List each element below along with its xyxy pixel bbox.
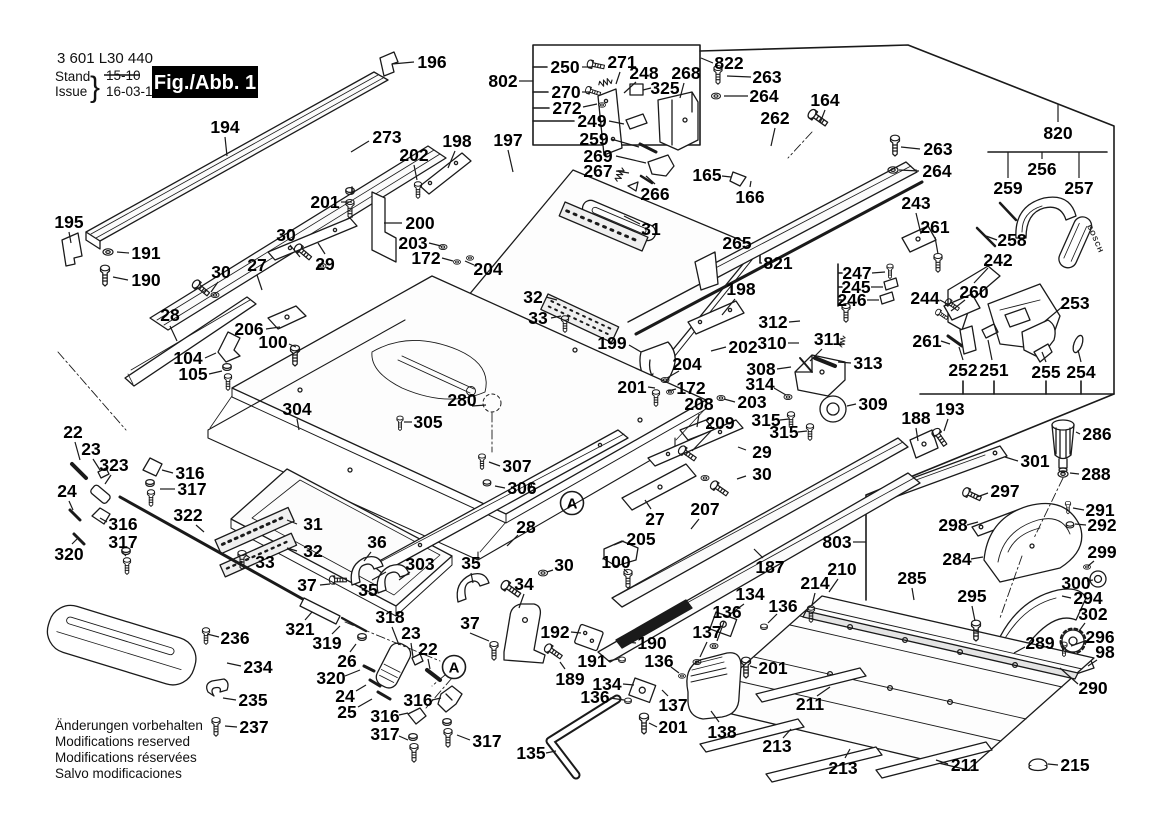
part-label-316: 316: [403, 690, 432, 710]
part-label-208: 208: [684, 394, 713, 414]
part-label-164: 164: [810, 90, 839, 110]
leader-251: [988, 340, 992, 360]
part-label-31: 31: [641, 219, 661, 239]
part-label-190: 190: [637, 633, 666, 653]
part-label-263: 263: [923, 139, 952, 159]
part-label-213: 213: [762, 736, 791, 756]
part-label-243: 243: [901, 193, 930, 213]
leader-234: [227, 663, 241, 666]
part-label-194: 194: [210, 117, 239, 137]
leader-288: [1070, 473, 1079, 474]
part-label-302: 302: [1078, 604, 1107, 624]
part-label-301: 301: [1020, 451, 1049, 471]
part-label-105: 105: [178, 364, 207, 384]
leader-261: [935, 237, 938, 254]
leader-273: [351, 141, 369, 152]
part-label-303: 303: [405, 554, 434, 574]
part-label-250: 250: [550, 57, 579, 77]
stand-label: Stand: [55, 69, 90, 84]
part-label-265: 265: [722, 233, 751, 253]
part-label-255: 255: [1031, 362, 1060, 382]
part-label-204: 204: [672, 354, 701, 374]
part-label-244: 244: [910, 288, 939, 308]
part-label-289: 289: [1025, 633, 1054, 653]
pin-24a: [70, 510, 80, 520]
part-label-310: 310: [757, 333, 786, 353]
part-label-325: 325: [650, 78, 679, 98]
part-label-313: 313: [853, 353, 882, 373]
part-label-234: 234: [243, 657, 272, 677]
part-label-246: 246: [837, 290, 866, 310]
bracket-34: [504, 604, 545, 663]
leader-304: [297, 419, 299, 430]
part-label-30: 30: [752, 464, 772, 484]
part-label-35: 35: [461, 553, 481, 573]
clamp-245: [884, 278, 898, 290]
leader-210: [829, 579, 838, 592]
leader-323: [105, 475, 111, 484]
part-label-201: 201: [617, 377, 646, 397]
leader-22: [75, 442, 80, 460]
part-label-201: 201: [658, 717, 687, 737]
leader-261: [941, 341, 950, 344]
leader-203: [429, 243, 441, 246]
part-label-802: 802: [488, 71, 517, 91]
part-label-34: 34: [514, 574, 534, 594]
leader-295: [972, 606, 975, 621]
part-label-28: 28: [516, 517, 536, 537]
leader-235: [223, 698, 236, 700]
part-label-213: 213: [828, 758, 857, 778]
plate-234: [42, 600, 201, 690]
part-label-193: 193: [935, 399, 964, 419]
hook-35b: [457, 574, 489, 602]
part-label-320: 320: [54, 544, 83, 564]
leader-262: [771, 128, 775, 146]
leader-197: [508, 150, 513, 172]
leader-30: [547, 570, 553, 572]
leader-29: [738, 447, 746, 450]
leader-272: [583, 104, 597, 107]
part-label-201: 201: [758, 658, 787, 678]
brace: }: [90, 71, 100, 104]
part-label-30: 30: [276, 225, 296, 245]
part-label-263: 263: [752, 67, 781, 87]
part-label-306: 306: [507, 478, 536, 498]
part-label-200: 200: [405, 213, 434, 233]
part-label-199: 199: [597, 333, 626, 353]
knob-323: [90, 484, 112, 505]
part-label-201: 201: [310, 192, 339, 212]
part-label-307: 307: [502, 456, 531, 476]
leader-263: [901, 147, 920, 149]
clip-235: [207, 679, 228, 696]
footer-line-fr: Modifications réservées: [55, 750, 197, 765]
leader-302: [1079, 623, 1085, 631]
part-label-312: 312: [758, 312, 787, 332]
part-label-166: 166: [735, 187, 764, 207]
leader-263: [727, 76, 751, 77]
part-label-235: 235: [238, 690, 267, 710]
grip-257: [1056, 214, 1094, 271]
plate-261b: [960, 326, 976, 354]
clip-316d: [92, 508, 110, 524]
part-label-314: 314: [745, 374, 774, 394]
part-label-209: 209: [705, 413, 734, 433]
issue-value: 16-03-10: [106, 84, 160, 99]
part-label-264: 264: [922, 161, 951, 181]
inset-802-parts: [598, 84, 698, 191]
part-label-100: 100: [601, 552, 630, 572]
part-label-252: 252: [948, 360, 977, 380]
leader-237: [225, 726, 237, 727]
leader-301: [1005, 457, 1018, 461]
part-label-172: 172: [411, 248, 440, 268]
part-label-165: 165: [692, 165, 721, 185]
part-label-257: 257: [1064, 178, 1093, 198]
part-label-29: 29: [315, 254, 335, 274]
leader-165: [722, 176, 731, 177]
leader-37: [320, 584, 330, 585]
part-label-28: 28: [160, 305, 180, 325]
leader-28: [170, 326, 177, 341]
pin-320b: [364, 666, 374, 671]
part-label-249: 249: [577, 111, 606, 131]
part-label-305: 305: [413, 412, 442, 432]
part-label-211: 211: [796, 694, 824, 714]
part-label-254: 254: [1066, 362, 1095, 382]
part-label-211: 211: [951, 755, 979, 775]
part-label-315: 315: [769, 422, 798, 442]
block-134b: [629, 678, 656, 702]
part-label-27: 27: [645, 509, 664, 529]
part-label-264: 264: [749, 86, 778, 106]
part-label-30: 30: [211, 262, 231, 282]
leader-104: [205, 353, 216, 358]
leader-308: [777, 367, 791, 369]
part-label-203: 203: [737, 392, 766, 412]
part-label-136: 136: [712, 602, 741, 622]
part-label-37: 37: [297, 575, 316, 595]
part-label-311: 311: [814, 329, 842, 349]
plate-188: [910, 430, 938, 458]
part-label-288: 288: [1081, 464, 1110, 484]
part-label-189: 189: [555, 669, 584, 689]
leader-252: [959, 347, 963, 360]
leader-190: [113, 277, 128, 280]
part-label-135: 135: [516, 743, 545, 763]
parts-diagram-page: 1961942732021981972012003020317220427291…: [0, 0, 1166, 824]
leader-254: [1078, 350, 1081, 362]
part-label-316: 316: [370, 706, 399, 726]
part-label-267: 267: [583, 161, 612, 181]
part-label-803: 803: [822, 532, 851, 552]
leader-137: [700, 642, 707, 657]
leader-37: [470, 633, 489, 641]
part-label-134: 134: [735, 584, 764, 604]
leader-201: [649, 723, 657, 727]
part-label-25: 25: [337, 702, 357, 722]
leader-22: [428, 659, 430, 669]
clip-316b: [408, 708, 426, 724]
pin-252: [948, 336, 962, 346]
clip-316c: [143, 458, 162, 476]
part-label-190: 190: [131, 270, 160, 290]
leader-105: [209, 371, 222, 374]
leader-317: [457, 735, 470, 740]
part-label-32: 32: [303, 541, 323, 561]
figure-badge: Fig./Abb. 1: [152, 66, 258, 98]
part-label-33: 33: [255, 552, 275, 572]
leader-316: [399, 713, 408, 715]
part-label-280: 280: [447, 390, 476, 410]
part-label-215: 215: [1060, 755, 1089, 775]
part-label-210: 210: [827, 559, 856, 579]
part-label-316: 316: [108, 514, 137, 534]
leader-312: [789, 321, 800, 322]
leader-194: [225, 137, 227, 156]
part-label-297: 297: [990, 481, 1019, 501]
part-label-242: 242: [983, 250, 1012, 270]
part-label-100: 100: [258, 332, 287, 352]
clip-316a: [438, 686, 462, 712]
leader-271: [616, 72, 620, 84]
part-label-187: 187: [755, 557, 784, 577]
part-label-136: 136: [644, 651, 673, 671]
leader-189: [560, 662, 565, 669]
part-label-261: 261: [920, 217, 949, 237]
part-label-821: 821: [763, 253, 792, 273]
part-label-29: 29: [752, 442, 772, 462]
part-label-197: 197: [493, 130, 522, 150]
leader-27: [257, 275, 262, 290]
part-label-202: 202: [728, 337, 757, 357]
part-label-317: 317: [177, 479, 206, 499]
part-label-290: 290: [1078, 678, 1107, 698]
part-label-138: 138: [707, 722, 736, 742]
part-label-33: 33: [528, 308, 548, 328]
part-label-321: 321: [285, 619, 314, 639]
leader-202: [711, 347, 726, 351]
part-label-237: 237: [239, 717, 268, 737]
part-label-214: 214: [800, 573, 829, 593]
part-label-202: 202: [399, 145, 428, 165]
body-284: [984, 504, 1082, 583]
part-label-37: 37: [460, 613, 479, 633]
part-label-188: 188: [901, 408, 930, 428]
leader-269: [616, 156, 646, 163]
leader-215: [1048, 764, 1058, 765]
part-label-191: 191: [131, 243, 160, 263]
part-label-27: 27: [247, 255, 266, 275]
leader-297: [977, 493, 988, 497]
part-label-207: 207: [690, 499, 719, 519]
roller-309: [820, 396, 846, 422]
leader-298: [967, 522, 978, 525]
grip-brand-text: BOSCH: [1085, 224, 1104, 255]
part-label-285: 285: [897, 568, 926, 588]
part-label-236: 236: [220, 628, 249, 648]
part-label-260: 260: [959, 282, 988, 302]
pin-320a: [74, 534, 84, 544]
leader-30: [737, 476, 746, 479]
leader-236: [207, 634, 219, 637]
part-label-198: 198: [726, 279, 755, 299]
rail-262: [695, 162, 917, 290]
leader-317: [399, 736, 408, 740]
part-label-22: 22: [63, 422, 83, 442]
part-label-35: 35: [358, 580, 378, 600]
leader-193: [944, 419, 948, 431]
part-label-136: 136: [580, 687, 609, 707]
knob-286: [1052, 420, 1074, 472]
leader-309: [847, 404, 856, 406]
part-label-259: 259: [993, 178, 1022, 198]
plate-192: [574, 624, 603, 651]
part-label-317: 317: [108, 532, 137, 552]
part-label-820: 820: [1043, 123, 1072, 143]
part-label-256: 256: [1027, 159, 1056, 179]
part-label-198: 198: [442, 131, 471, 151]
part-label-205: 205: [626, 529, 655, 549]
leader-315: [798, 431, 807, 432]
pin-22a: [72, 464, 86, 478]
foot-215: [1029, 759, 1047, 771]
part-label-98: 98: [1095, 642, 1115, 662]
part-label-24: 24: [57, 481, 77, 501]
part-label-191: 191: [577, 651, 606, 671]
part-label-309: 309: [858, 394, 887, 414]
part-label-36: 36: [367, 532, 387, 552]
part-label-304: 304: [282, 399, 311, 419]
leader-322: [196, 525, 204, 532]
part-label-298: 298: [938, 515, 967, 535]
leader-29: [318, 243, 325, 254]
part-label-258: 258: [997, 230, 1026, 250]
plate-206: [268, 306, 306, 329]
part-label-195: 195: [54, 212, 83, 232]
part-label-30: 30: [554, 555, 574, 575]
end-cap-195: [62, 233, 82, 266]
footer-line-es: Salvo modificaciones: [55, 766, 182, 781]
pin-259b: [1000, 203, 1016, 220]
leader-203: [724, 399, 735, 402]
part-label-320: 320: [316, 668, 345, 688]
bracket-200: [372, 192, 396, 262]
part-label-192: 192: [540, 622, 569, 642]
part-label-261: 261: [912, 331, 941, 351]
circled-letter-A: A: [449, 660, 460, 677]
part-label-273: 273: [372, 127, 401, 147]
part-label-204: 204: [473, 259, 502, 279]
part-label-292: 292: [1087, 515, 1116, 535]
leader-172: [442, 258, 453, 261]
leader-284: [971, 557, 983, 559]
pin-258: [977, 228, 995, 246]
part-label-196: 196: [417, 52, 446, 72]
part-label-31: 31: [303, 514, 323, 534]
part-label-323: 323: [99, 455, 128, 475]
footer-line-de: Änderungen vorbehalten: [55, 718, 203, 733]
circled-letter-A: A: [567, 496, 578, 513]
footer-notes: Änderungen vorbehalten Modifications res…: [55, 718, 203, 781]
pin-22b: [427, 670, 440, 680]
part-label-22: 22: [418, 639, 438, 659]
part-label-295: 295: [957, 586, 986, 606]
part-label-32: 32: [523, 287, 543, 307]
part-label-284: 284: [942, 549, 971, 569]
part-label-299: 299: [1087, 542, 1116, 562]
disc-300: [1090, 571, 1106, 587]
footer-line-en: Modifications reserved: [55, 734, 190, 749]
leader-285: [912, 588, 914, 600]
part-label-23: 23: [81, 439, 101, 459]
part-label-266: 266: [640, 184, 669, 204]
leader-24: [356, 685, 366, 691]
part-label-136: 136: [768, 596, 797, 616]
part-label-251: 251: [979, 360, 1008, 380]
leader-191: [117, 252, 129, 253]
pin-25: [378, 692, 390, 699]
leader-247: [872, 272, 885, 273]
exploded-parts-diagram: 1961942732021981972012003020317220427291…: [0, 0, 1166, 824]
part-label-137: 137: [692, 622, 721, 642]
part-label-322: 322: [173, 505, 202, 525]
leader-286: [1076, 432, 1080, 434]
leader-207: [691, 519, 699, 529]
part-label-137: 137: [658, 695, 687, 715]
leader-314: [774, 388, 786, 395]
leader-291: [1073, 508, 1084, 510]
part-label-317: 317: [370, 724, 399, 744]
part-label-822: 822: [714, 53, 743, 73]
knob-302: [1061, 629, 1086, 654]
plate-27b: [622, 464, 696, 510]
wedge-246: [880, 292, 894, 304]
hex-key-135: [550, 699, 617, 775]
leader-316: [162, 470, 173, 473]
leader-315: [780, 419, 789, 420]
part-number: 3 601 L30 440: [57, 50, 153, 67]
part-label-319: 319: [312, 633, 341, 653]
figure-label: Fig./Abb. 1: [154, 72, 256, 94]
part-label-317: 317: [472, 731, 501, 751]
leader-822: [701, 58, 713, 63]
header-block: 3 601 L30 440 Stand Issue } 15-10 16-03-…: [55, 50, 258, 104]
part-label-262: 262: [760, 108, 789, 128]
part-label-253: 253: [1060, 293, 1089, 313]
part-label-286: 286: [1082, 424, 1111, 444]
issue-label: Issue: [55, 84, 87, 99]
